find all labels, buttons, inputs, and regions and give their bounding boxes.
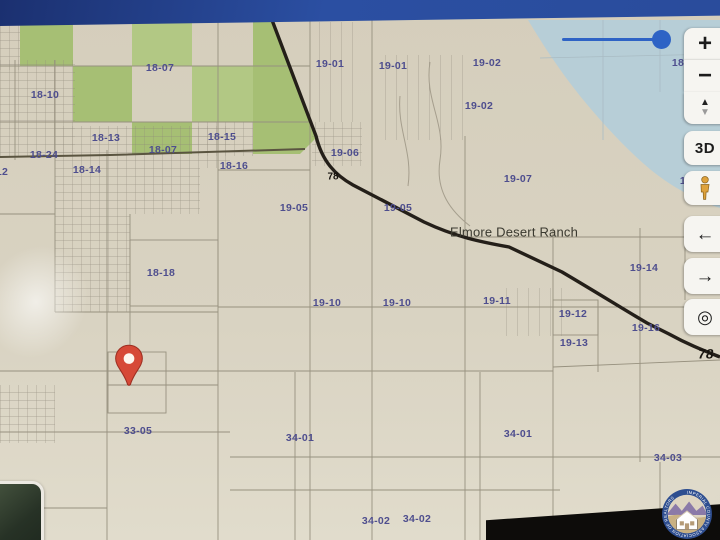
zoom-out-icon: − bbox=[698, 64, 712, 88]
pan-right-button[interactable]: → bbox=[684, 258, 720, 294]
street-view-button[interactable] bbox=[684, 171, 720, 205]
pin-icon bbox=[113, 344, 145, 387]
zoom-in-button[interactable]: + bbox=[684, 28, 720, 60]
realtor-association-logo: IMPERIAL COUNTY ASSOCIATION OF REALTORS bbox=[661, 488, 713, 540]
map-marker[interactable] bbox=[113, 344, 145, 387]
pan-left-button[interactable]: ← bbox=[684, 216, 720, 252]
layers-preview-button[interactable] bbox=[0, 481, 44, 540]
tilt-button[interactable]: ▲▼ bbox=[684, 92, 720, 124]
zoom-slider[interactable] bbox=[562, 30, 678, 50]
tilt-icon: ▲▼ bbox=[700, 98, 710, 118]
3d-view-icon: 3D bbox=[695, 141, 715, 156]
pan-right-icon: → bbox=[696, 267, 715, 286]
zoom-out-button[interactable]: − bbox=[684, 60, 720, 92]
slider-track bbox=[562, 38, 662, 41]
locate-icon: ◎ bbox=[697, 308, 713, 326]
map-app-screenshot: 18-0718-1018-1318-1518-0718-2418-1418-16… bbox=[0, 0, 720, 540]
pan-left-icon: ← bbox=[696, 225, 715, 244]
3d-view-button[interactable]: 3D bbox=[684, 131, 720, 165]
pegman-icon bbox=[694, 175, 716, 201]
map-canvas[interactable] bbox=[0, 0, 720, 540]
locate-button[interactable]: ◎ bbox=[684, 299, 720, 335]
slider-handle[interactable] bbox=[652, 30, 671, 49]
zoom-in-icon: + bbox=[698, 32, 712, 56]
